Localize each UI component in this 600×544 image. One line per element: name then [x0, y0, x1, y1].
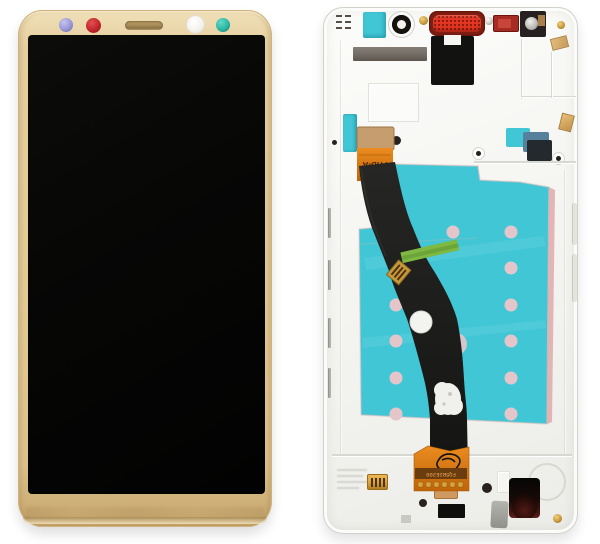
frame-back-assembly: FHD-A	[323, 7, 578, 534]
molded-line-v1	[521, 39, 522, 99]
teal-adhesive-film	[359, 164, 555, 424]
screw-gold-top-left	[419, 16, 428, 25]
red-sensor-dot-icon	[86, 18, 101, 33]
inner-wall-right	[564, 170, 565, 456]
molded-ridge-mid	[474, 161, 576, 163]
antenna-contacts	[336, 13, 350, 37]
molded-ridge-bottom	[332, 454, 572, 456]
round-white-sticker	[410, 311, 432, 333]
flex-bottom-connector: FQ5B2E200	[414, 446, 469, 491]
phone-screen-off	[28, 35, 265, 494]
bottom-hole-left	[419, 499, 427, 507]
edge-slot-4	[328, 368, 331, 398]
black-component	[431, 36, 474, 85]
phone-front-assembly	[18, 10, 272, 527]
flex-cable-label: FHD-A	[362, 160, 387, 169]
tan-connector-strip	[434, 490, 458, 499]
screw-gold-bottom	[553, 514, 562, 523]
edge-slot-2	[328, 260, 331, 290]
gold-contact-bit	[558, 113, 575, 133]
connector-gold-pads	[418, 482, 463, 487]
molded-line-h1	[521, 96, 576, 97]
camera-hole-boss	[388, 11, 415, 38]
black-rect-component	[438, 504, 465, 518]
gold-antenna-pad	[367, 474, 388, 490]
black-square-patch	[527, 140, 552, 161]
earpiece-speaker-slot	[125, 21, 163, 30]
red-component	[493, 15, 519, 32]
flex-orange-segment	[357, 148, 393, 181]
ink-sketch	[437, 454, 460, 472]
bottom-edge-highlight	[23, 517, 267, 524]
teal-tab-left	[343, 114, 357, 152]
screw-silver-top	[485, 17, 493, 25]
screw-mid-right	[552, 152, 565, 165]
green-tape-strip	[400, 239, 459, 263]
connector-label-band	[415, 468, 467, 479]
gray-square-bit	[401, 515, 411, 523]
cotton-blob	[434, 382, 463, 415]
teal-sensor-dot-icon	[216, 18, 230, 32]
stamped-text-marks	[337, 465, 370, 493]
molded-line-v2	[551, 52, 552, 98]
front-camera-icon	[59, 18, 73, 32]
product-photo-phone-lcd-assembly: FHD-A	[0, 0, 600, 544]
flex-top-connector	[357, 127, 394, 150]
inner-wall-left	[340, 40, 341, 455]
black-ribbon-cable	[359, 162, 468, 470]
side-button-bump-2	[572, 254, 577, 302]
adhesive-hole-dots	[390, 226, 518, 421]
embossed-rectangle	[368, 83, 419, 122]
bottom-hole-right	[482, 483, 492, 493]
screw-gold-top-right	[557, 21, 565, 29]
main-flex-cable: FHD-A	[357, 127, 469, 491]
white-sensor-dot-icon	[187, 16, 204, 33]
connector-code-text: FQ5B2E200	[426, 471, 456, 478]
edge-slot-3	[328, 318, 331, 348]
gray-nub	[490, 501, 508, 529]
teal-adhesive-square	[363, 12, 386, 38]
edge-slot-1	[328, 208, 331, 238]
camera-ring	[392, 15, 411, 34]
proximity-sensor-module	[520, 11, 546, 37]
side-button-bump-1	[572, 203, 577, 245]
gold-tape-piece	[550, 35, 569, 51]
frame-hole	[392, 136, 401, 145]
earpiece-mesh-red	[429, 11, 485, 36]
gray-adhesive-strip	[353, 47, 427, 61]
pink-lcd-edge	[547, 187, 555, 424]
camera-lens-housing	[509, 478, 540, 518]
gold-mini-connector	[386, 260, 410, 285]
screw-mid-left	[472, 147, 485, 160]
small-screw-hole	[332, 140, 337, 145]
